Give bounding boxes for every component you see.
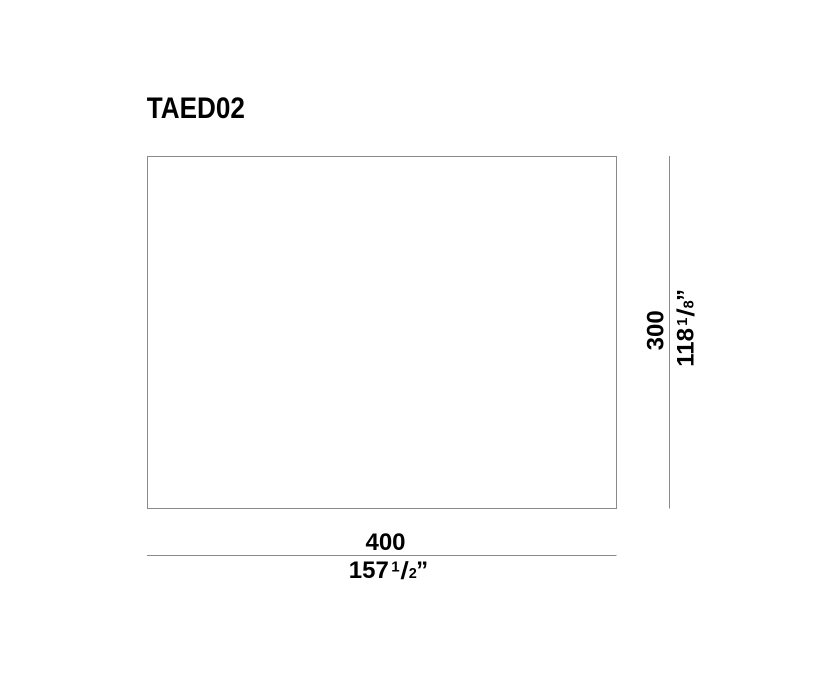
svg-text:118: 118 bbox=[672, 328, 699, 367]
svg-text:”: ” bbox=[672, 289, 699, 301]
svg-text:”: ” bbox=[416, 557, 428, 584]
svg-text:TAED02: TAED02 bbox=[147, 91, 245, 124]
svg-text:1: 1 bbox=[391, 559, 399, 576]
svg-text:1: 1 bbox=[674, 317, 691, 325]
svg-text:400: 400 bbox=[365, 529, 405, 556]
svg-text:157: 157 bbox=[349, 557, 389, 584]
svg-text:300: 300 bbox=[643, 310, 670, 350]
